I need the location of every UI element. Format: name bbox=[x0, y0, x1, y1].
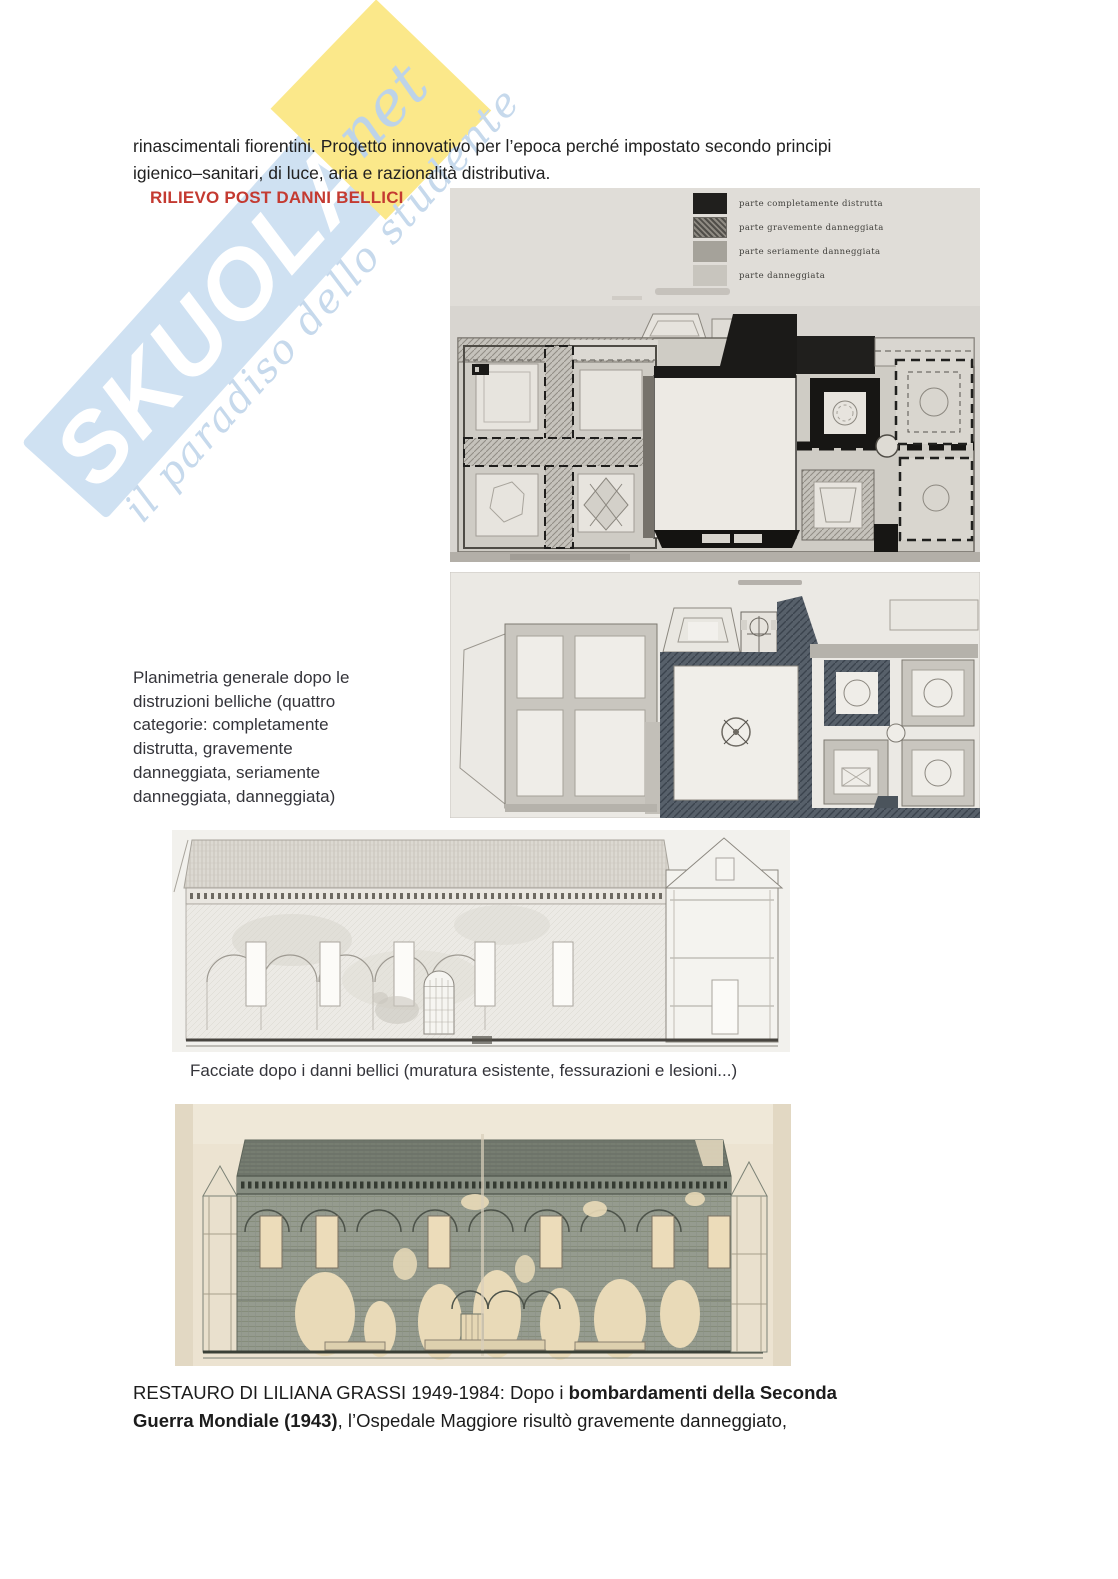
restauro-line-2: Guerra Mondiale (1943), l’Ospedale Maggi… bbox=[133, 1407, 993, 1435]
restauro-bold-text: bombardamenti della Seconda bbox=[569, 1382, 837, 1403]
caption-line: distruzioni belliche (quattro bbox=[133, 690, 453, 714]
section-heading: RILIEVO POST DANNI BELLICI bbox=[150, 188, 404, 208]
intro-line-1: rinascimentali fiorentini. Progetto inno… bbox=[133, 133, 978, 160]
caption-line: Planimetria generale dopo le bbox=[133, 666, 453, 690]
legend-label: parte seriamente danneggiata bbox=[739, 247, 881, 257]
legend-label: parte danneggiata bbox=[739, 271, 825, 281]
legend-swatch-completamente-distrutta bbox=[693, 193, 727, 214]
document-page: SKUOLA net il paradiso dello studente ri… bbox=[0, 0, 1118, 1579]
intro-line-2: igienico–sanitari, di luce, aria e razio… bbox=[133, 160, 978, 187]
restauro-paragraph: RESTAURO DI LILIANA GRASSI 1949-1984: Do… bbox=[133, 1379, 993, 1435]
figure-facciata-danni-1 bbox=[172, 830, 790, 1052]
restauro-bold-text: Guerra Mondiale (1943) bbox=[133, 1410, 338, 1431]
legend-item: parte gravemente danneggiata bbox=[693, 216, 884, 239]
legend-item: parte completamente distrutta bbox=[693, 192, 883, 215]
caption-line: danneggiata, danneggiata) bbox=[133, 785, 453, 809]
restauro-text: RESTAURO DI LILIANA GRASSI 1949-1984: Do… bbox=[133, 1382, 569, 1403]
restauro-text: , l’Ospedale Maggiore risultò gravemente… bbox=[338, 1410, 787, 1431]
caption-line: danneggiata, seriamente bbox=[133, 761, 453, 785]
caption-facciate: Facciate dopo i danni bellici (muratura … bbox=[190, 1061, 737, 1081]
figure-plan-rilievo-danni: parte completamente distrutta parte grav… bbox=[450, 188, 980, 562]
facciata-drawing-1 bbox=[172, 830, 790, 1052]
facciata-drawing-2 bbox=[175, 1104, 791, 1366]
legend-item: parte seriamente danneggiata bbox=[693, 240, 881, 263]
figure-facciata-danni-2 bbox=[175, 1104, 791, 1366]
legend-swatch-gravemente-danneggiata bbox=[693, 217, 727, 238]
legend-item: parte danneggiata bbox=[693, 264, 825, 287]
plan-distruzioni-drawing bbox=[450, 572, 980, 818]
legend-swatch-danneggiata bbox=[693, 265, 727, 286]
restauro-line-1: RESTAURO DI LILIANA GRASSI 1949-1984: Do… bbox=[133, 1379, 993, 1407]
legend-label: parte gravemente danneggiata bbox=[739, 223, 884, 233]
figure-plan-distruzioni bbox=[450, 572, 980, 818]
legend-label: parte completamente distrutta bbox=[739, 199, 883, 209]
caption-line: categorie: completamente bbox=[133, 713, 453, 737]
caption-line: distrutta, gravemente bbox=[133, 737, 453, 761]
legend-swatch-seriamente-danneggiata bbox=[693, 241, 727, 262]
skuola-logo: SKUOLA net bbox=[22, 30, 479, 519]
plinth-blocks bbox=[325, 1340, 645, 1350]
caption-planimetria: Planimetria generale dopo le distruzioni… bbox=[133, 666, 453, 808]
intro-paragraph: rinascimentali fiorentini. Progetto inno… bbox=[133, 133, 978, 187]
